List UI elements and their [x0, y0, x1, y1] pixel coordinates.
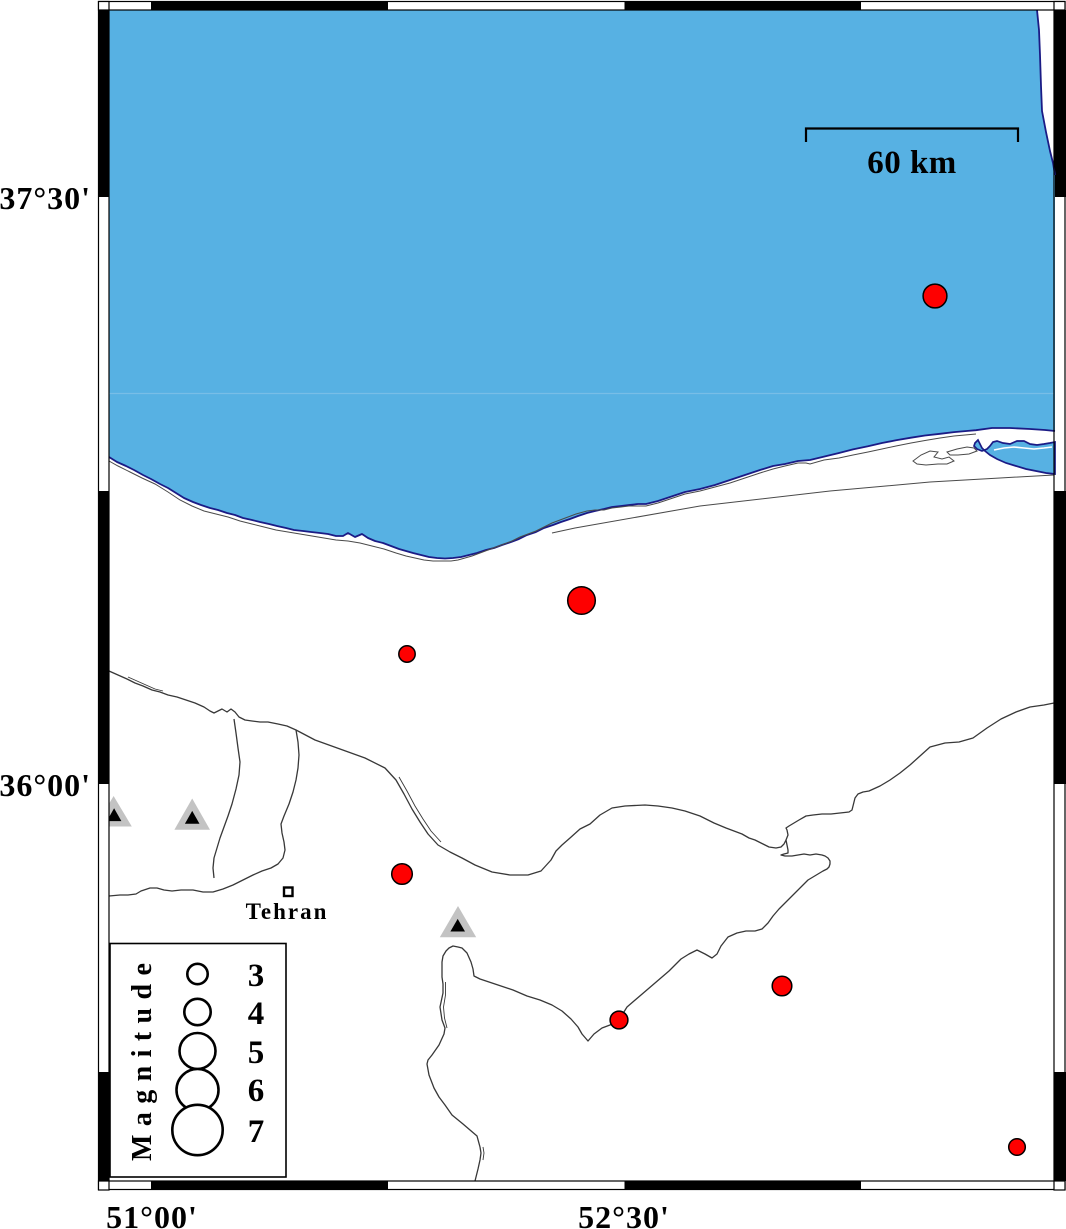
svg-text:3: 3	[248, 958, 265, 994]
svg-text:Tehran: Tehran	[246, 899, 329, 924]
svg-text:4: 4	[248, 996, 265, 1032]
svg-text:6: 6	[248, 1073, 265, 1109]
svg-text:51°00': 51°00'	[106, 1199, 198, 1229]
svg-text:37°30': 37°30'	[0, 180, 91, 216]
svg-text:52°30': 52°30'	[578, 1199, 670, 1229]
svg-text:36°00': 36°00'	[0, 767, 91, 803]
svg-text:Magnitude: Magnitude	[127, 955, 158, 1161]
svg-text:7: 7	[248, 1114, 265, 1150]
svg-text:5: 5	[248, 1035, 265, 1071]
svg-text:60 km: 60 km	[867, 145, 957, 181]
